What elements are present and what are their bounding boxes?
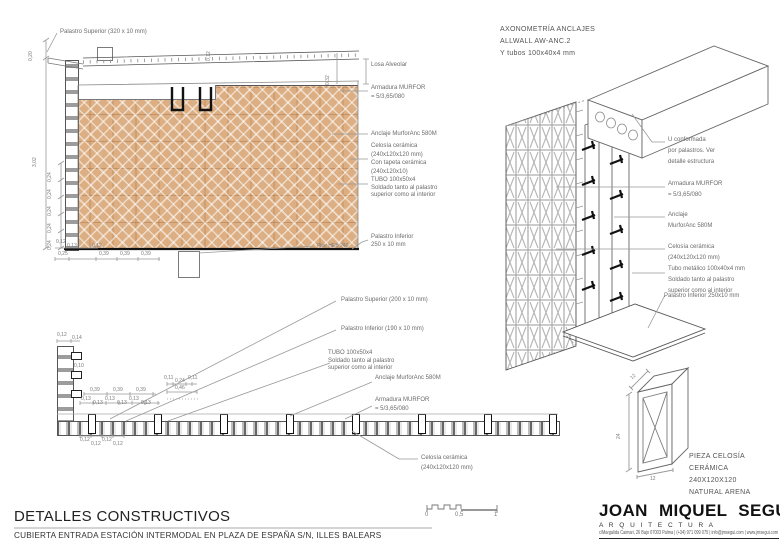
dim-v-top: 0,20 [29, 51, 34, 61]
sheet-subtitle: CUBIERTA ENTRADA ESTACIÓN INTERMODAL EN … [14, 531, 381, 540]
plan-dim-024: 0,24 [175, 379, 185, 384]
firm-address-rule: c/Margalida Caimari, 26 Bajo 07003 Palma… [599, 530, 779, 539]
plan-dim-039-a: 0,39 [90, 388, 100, 393]
label-plan-anclaje: Anclaje MurforAnc 580M [375, 374, 441, 383]
dim-039-b: 0,39 [120, 252, 130, 257]
drawing-sheet: Palastro Superior (320 x 10 mm) Losa Alv… [0, 0, 780, 551]
linework-layer [0, 0, 780, 551]
plan-tube-3 [220, 414, 228, 434]
piece-dim-height: 24 [617, 433, 622, 439]
piece-dim-width: 12 [650, 477, 656, 482]
plan-dim-014: 0,14 [72, 336, 82, 341]
label-plan-palastro-inferior: Palastro Inferior (190 x 10 mm) [341, 325, 424, 334]
plan-dim-011-a: 0,11 [164, 376, 173, 381]
pilar-heb240-outline [178, 251, 200, 278]
plan-tube-2 [154, 414, 162, 434]
label-plan-tubo: TUBO 100x50x4 Soldado tanto al palastro … [328, 350, 394, 373]
label-plan-celosia: Celosía cerámica (240x120x120 mm) [421, 453, 473, 473]
dim-024-5: 0,24 [48, 240, 53, 250]
sheet-title: DETALLES CONSTRUCTIVOS [14, 508, 230, 525]
lattice-top-notch [78, 85, 216, 100]
plan-dim-012-top: 0,12 [57, 333, 67, 338]
label-anclaje-murforanc: Anclaje MurforAnc 580M [371, 130, 437, 139]
piece-dim-depth: 12 [630, 374, 637, 381]
plan-dim-046: 0,46 [175, 386, 185, 391]
scale-one: 1 [494, 513, 497, 518]
plan-dim-010: 0,10 [74, 364, 84, 369]
dim-012-a: 0,12 [56, 240, 66, 245]
dim-v-joint: 0,12 [207, 51, 212, 61]
label-plan-palastro-superior: Palastro Superior (200 x 10 mm) [341, 296, 428, 305]
label-axon-u-conformada: U conformada por palastros. Ver detalle … [668, 135, 715, 168]
dim-024-4: 0,24 [48, 223, 53, 233]
plan-dim-039-b: 0,39 [113, 388, 123, 393]
plan-dim-013-1: 0,13 [81, 397, 91, 402]
plan-dim-012-r4: 0,12 [113, 442, 123, 447]
plan-dim-013-6: 0,13 [141, 401, 151, 406]
plan-tube-8 [549, 414, 557, 434]
plan-strip-tube-1 [71, 352, 82, 360]
plan-dim-012-r3: 0,12 [102, 438, 112, 443]
upstand-plate [97, 47, 113, 61]
label-celosia-ceramica: Celosía cerámica (240x120x120 mm) Con ta… [371, 142, 426, 176]
label-axon-celosia: Celosía cerámica (240x120x120 mm) [668, 242, 720, 264]
dim-039-a: 0,39 [99, 252, 109, 257]
label-pilar-heb240: Pilar HEB 240 [317, 244, 348, 249]
label-tubo-100x50x4: TUBO 100x50x4 Soldado tanto al palastro … [371, 177, 437, 200]
piece-label: PIEZA CELOSÍA CERÁMICA 240X120X120 NATUR… [689, 451, 780, 499]
scale-zero: 0 [425, 513, 428, 518]
dim-013-a: 0,13 [67, 244, 77, 249]
firm-name: JOAN MIQUEL SEGUI [599, 501, 779, 521]
scale-half: 0,5 [455, 513, 463, 518]
dim-v-slab: 0,32 [326, 75, 331, 85]
firm-discipline: A R Q U I T E C T U R A [599, 522, 779, 529]
dim-025: 0,25 [58, 252, 68, 257]
ceramic-lattice-section [78, 85, 358, 250]
firm-address: c/Margalida Caimari, 26 Bajo 07003 Palma… [599, 530, 739, 536]
plan-dim-013-4: 0,13 [117, 401, 127, 406]
plan-dim-039-c: 0,39 [136, 388, 146, 393]
plan-dim-011-b: 0,11 [188, 376, 197, 381]
title-block: JOAN MIQUEL SEGUI A R Q U I T E C T U R … [599, 501, 779, 539]
label-plan-armadura: Armadura MURFOR = 5/3,65/080 [375, 396, 429, 414]
dim-024-2: 0,24 [48, 189, 53, 199]
dim-039-c: 0,39 [141, 252, 151, 257]
wall-end-blocks [65, 60, 79, 251]
dim-024-3: 0,24 [48, 206, 53, 216]
plan-dim-013-2: 0,13 [93, 401, 103, 406]
label-axon-armadura: Armadura MURFOR = 5/3,65/080 [668, 179, 722, 201]
axon-linework [506, 46, 768, 370]
label-armadura-murfor: Armadura MURFOR = 5/3,65/080 [371, 84, 425, 102]
plan-dim-012-r2: 0,12 [91, 442, 101, 447]
label-palastro-inferior-250: Palastro Inferior 250 x 10 mm [371, 234, 413, 249]
plan-tube-5 [352, 414, 360, 434]
label-axon-palastro-inferior: Palastro Inferior 250x10 mm [664, 291, 739, 302]
plan-strip-tube-2 [71, 371, 82, 379]
plan-dim-013-5: 0,13 [129, 397, 139, 402]
piece-linework [626, 368, 688, 479]
dim-v-total: 3,02 [33, 157, 38, 167]
axon-title: AXONOMETRÍA ANCLAJES ALLWALL AW-ANC.2 Y … [500, 24, 595, 60]
plan-dim-013-3: 0,13 [105, 397, 115, 402]
label-axon-anclaje: Anclaje MurforAnc 580M [668, 210, 712, 232]
dim-024-1: 0,24 [48, 172, 53, 182]
plan-tube-4 [286, 414, 294, 434]
plan-tube-1 [88, 414, 96, 434]
label-palastro-superior-320: Palastro Superior (320 x 10 mm) [60, 28, 147, 37]
plan-tube-7 [484, 414, 492, 434]
dim-012-b: 0,12 [92, 244, 102, 249]
plan-tube-6 [418, 414, 426, 434]
label-losa-alveolar: Losa Alveolar [371, 61, 407, 70]
plan-dim-012-r1: 0,12 [80, 438, 90, 443]
